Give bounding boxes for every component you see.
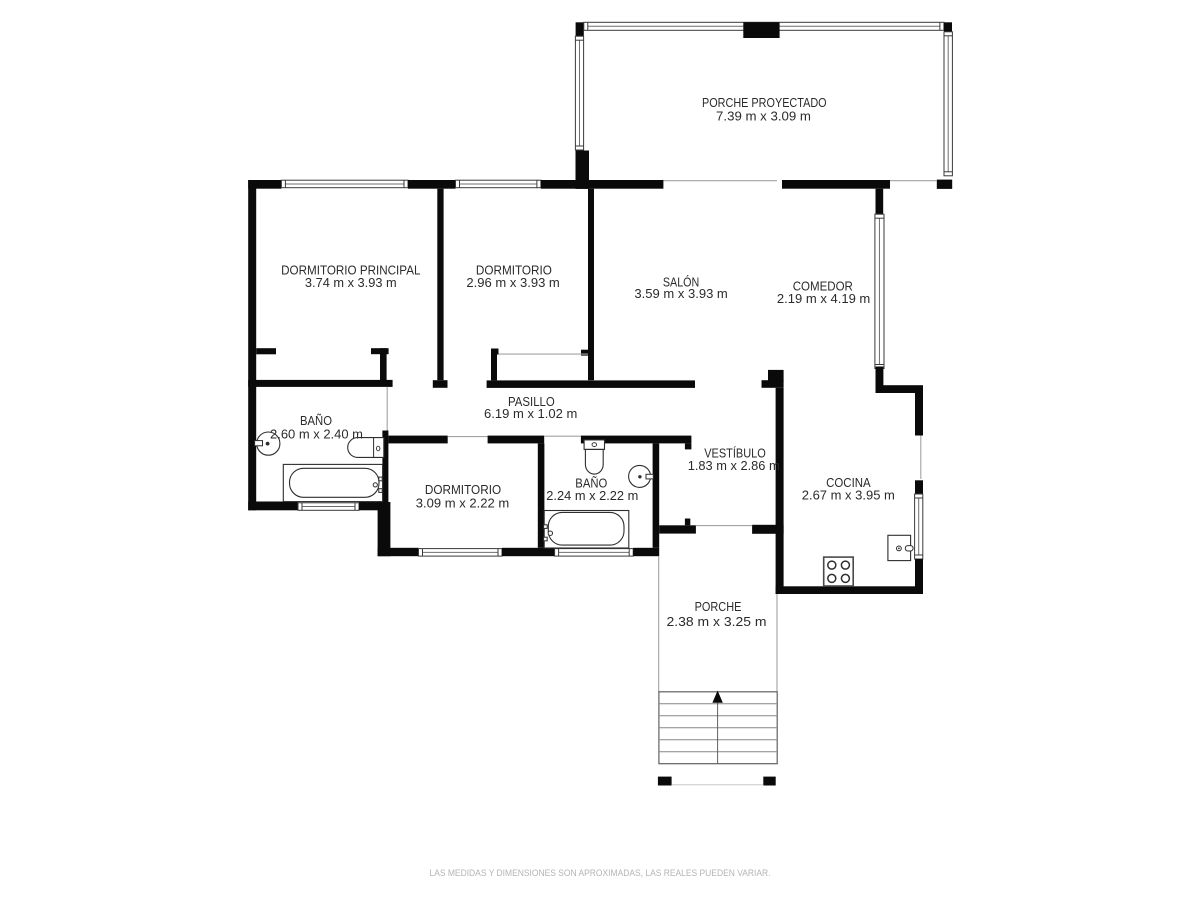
svg-text:2.19 m x 4.19 m: 2.19 m x 4.19 m — [777, 291, 870, 306]
svg-text:3.09 m x 2.22 m: 3.09 m x 2.22 m — [416, 496, 509, 511]
svg-text:PORCHE: PORCHE — [695, 599, 742, 614]
svg-text:3.74 m x 3.93 m: 3.74 m x 3.93 m — [305, 275, 397, 290]
svg-text:2.38 m x 3.25 m: 2.38 m x 3.25 m — [667, 614, 767, 629]
svg-text:1.83 m x 2.86 m: 1.83 m x 2.86 m — [688, 458, 780, 473]
svg-text:3.59 m x 3.93 m: 3.59 m x 3.93 m — [634, 286, 727, 301]
svg-text:2.24 m x 2.22 m: 2.24 m x 2.22 m — [546, 488, 638, 503]
svg-text:7.39 m x 3.09 m: 7.39 m x 3.09 m — [716, 109, 811, 124]
svg-text:2.67 m x 3.95 m: 2.67 m x 3.95 m — [802, 487, 895, 502]
svg-text:2.96 m x 3.93 m: 2.96 m x 3.93 m — [466, 275, 559, 290]
svg-text:2.60 m x 2.40 m: 2.60 m x 2.40 m — [270, 427, 363, 442]
svg-text:6.19 m x 1.02 m: 6.19 m x 1.02 m — [484, 406, 577, 421]
svg-text:LAS MEDIDAS Y DIMENSIONES SON: LAS MEDIDAS Y DIMENSIONES SON APROXIMADA… — [430, 868, 771, 878]
